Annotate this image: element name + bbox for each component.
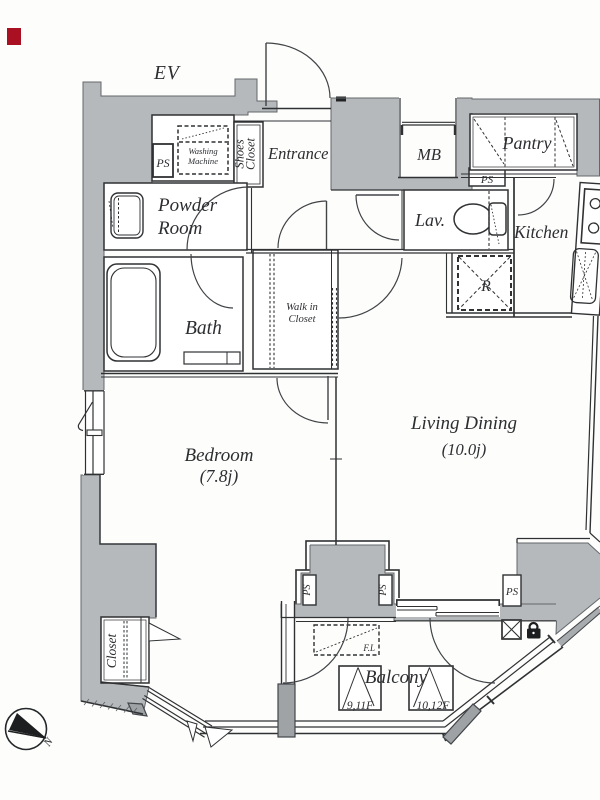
svg-text:PS: PS <box>155 156 169 170</box>
svg-text:PS: PS <box>378 584 389 596</box>
svg-text:10,12F: 10,12F <box>417 700 451 712</box>
svg-text:Living Dining: Living Dining <box>410 413 517 434</box>
svg-text:Balcony: Balcony <box>365 667 428 688</box>
svg-text:PS: PS <box>480 174 494 186</box>
svg-text:Bedroom: Bedroom <box>185 445 254 466</box>
svg-text:Room: Room <box>157 218 202 239</box>
svg-text:Closet: Closet <box>288 314 316 325</box>
svg-text:Walk in: Walk in <box>286 302 318 313</box>
svg-text:Washing: Washing <box>188 146 218 156</box>
svg-text:F.L: F.L <box>362 643 375 653</box>
svg-text:(7.8j): (7.8j) <box>200 466 239 486</box>
svg-text:(10.0j): (10.0j) <box>442 440 486 459</box>
svg-text:Closet: Closet <box>104 633 119 669</box>
svg-text:Pantry: Pantry <box>502 133 552 153</box>
svg-text:Kitchen: Kitchen <box>513 222 569 242</box>
svg-text:Entrance: Entrance <box>267 144 328 163</box>
svg-text:9,11F: 9,11F <box>347 700 374 712</box>
svg-text:Closet: Closet <box>244 138 258 170</box>
svg-text:MB: MB <box>416 145 441 164</box>
svg-text:Lav.: Lav. <box>414 210 445 230</box>
svg-text:EV: EV <box>153 63 181 84</box>
svg-text:Bath: Bath <box>185 318 222 339</box>
svg-text:R: R <box>480 278 491 295</box>
svg-text:PS: PS <box>505 586 519 598</box>
svg-text:Powder: Powder <box>157 195 218 216</box>
svg-text:PS: PS <box>302 584 313 596</box>
svg-text:Machine: Machine <box>187 156 218 166</box>
